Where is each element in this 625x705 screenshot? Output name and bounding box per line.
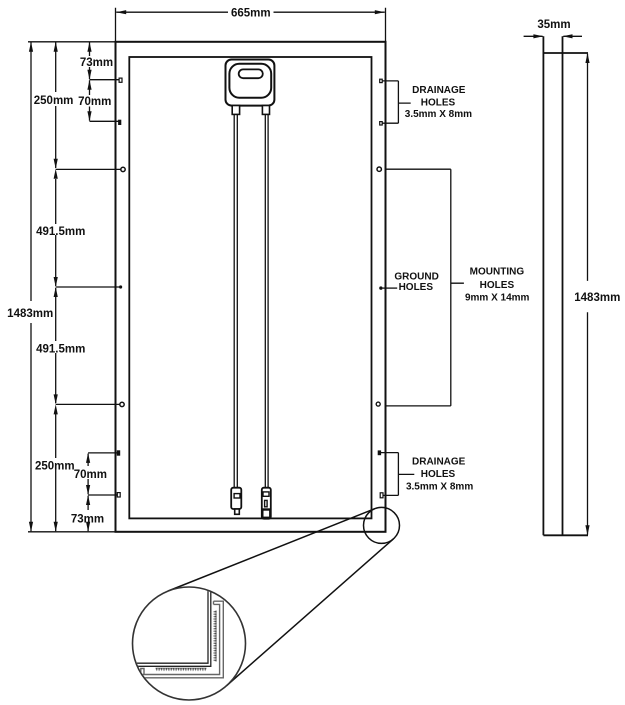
svg-text:1483mm: 1483mm bbox=[7, 308, 53, 320]
svg-text:70mm: 70mm bbox=[78, 96, 111, 108]
svg-text:DRAINAGE: DRAINAGE bbox=[412, 456, 466, 467]
svg-text:3.5mm X 8mm: 3.5mm X 8mm bbox=[406, 482, 473, 493]
svg-text:70mm: 70mm bbox=[74, 469, 107, 481]
svg-text:HOLES: HOLES bbox=[421, 97, 456, 108]
svg-text:665mm: 665mm bbox=[231, 8, 271, 20]
svg-text:73mm: 73mm bbox=[71, 513, 104, 525]
svg-text:3.5mm X 8mm: 3.5mm X 8mm bbox=[405, 109, 472, 120]
svg-text:250mm: 250mm bbox=[35, 460, 75, 472]
svg-text:DRAINAGE: DRAINAGE bbox=[412, 85, 466, 96]
svg-text:491.5mm: 491.5mm bbox=[36, 344, 85, 356]
svg-text:GROUND: GROUND bbox=[394, 271, 438, 282]
svg-text:250mm: 250mm bbox=[34, 95, 74, 107]
svg-text:MOUNTING: MOUNTING bbox=[470, 267, 525, 278]
svg-text:HOLES: HOLES bbox=[421, 469, 456, 480]
svg-text:491.5mm: 491.5mm bbox=[36, 226, 85, 238]
svg-text:HOLES: HOLES bbox=[480, 280, 515, 291]
svg-text:35mm: 35mm bbox=[537, 19, 570, 31]
svg-text:HOLES: HOLES bbox=[399, 282, 434, 293]
svg-text:9mm X 14mm: 9mm X 14mm bbox=[465, 293, 530, 304]
svg-text:1483mm: 1483mm bbox=[574, 292, 620, 304]
svg-text:73mm: 73mm bbox=[80, 57, 113, 69]
